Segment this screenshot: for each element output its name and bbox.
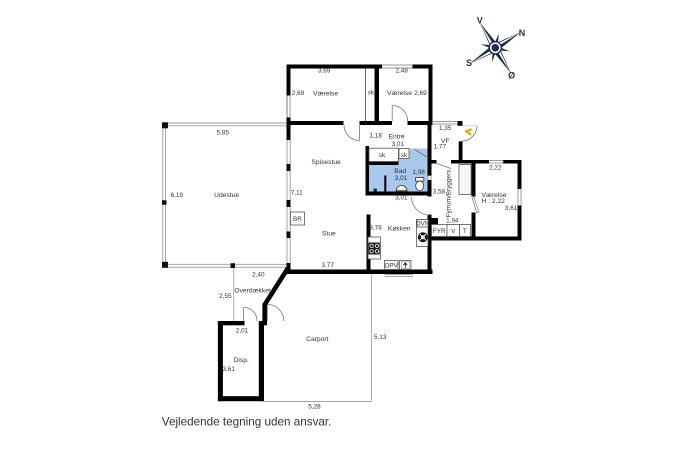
- svg-text:Spisestue: Spisestue: [311, 159, 341, 166]
- svg-text:3,77: 3,77: [321, 262, 334, 269]
- svg-text:3,78: 3,78: [369, 225, 382, 232]
- svg-text:2,55: 2,55: [219, 293, 232, 300]
- svg-text:1,77: 1,77: [434, 143, 447, 150]
- svg-text:sk: sk: [368, 89, 375, 96]
- svg-text:Entré: Entré: [389, 134, 405, 141]
- svg-text:T: T: [463, 228, 467, 235]
- svg-text:V: V: [477, 16, 483, 26]
- svg-text:3,58: 3,58: [433, 189, 446, 196]
- svg-text:N: N: [519, 28, 526, 38]
- svg-text:3,01: 3,01: [395, 175, 408, 182]
- svg-text:7,11: 7,11: [291, 189, 303, 196]
- svg-text:Disp.: Disp.: [234, 357, 249, 364]
- svg-text:3,69: 3,69: [318, 68, 331, 75]
- svg-text:5,85: 5,85: [216, 130, 229, 137]
- svg-text:Ø: Ø: [508, 71, 515, 81]
- svg-text:3,61: 3,61: [222, 366, 235, 373]
- svg-text:Vejledende tegning uden ansvar: Vejledende tegning uden ansvar.: [162, 416, 332, 429]
- svg-text:BR: BR: [293, 216, 302, 223]
- svg-text:Bad: Bad: [394, 168, 406, 175]
- svg-text:Udestue: Udestue: [214, 192, 239, 199]
- svg-text:2,40: 2,40: [252, 271, 265, 278]
- svg-text:2,48: 2,48: [395, 67, 408, 74]
- svg-text:2,22: 2,22: [489, 165, 502, 172]
- svg-text:3,01: 3,01: [392, 141, 405, 148]
- svg-text:Fyrrum/Bryggers: Fyrrum/Bryggers: [446, 170, 453, 218]
- svg-text:Stue: Stue: [322, 230, 336, 237]
- svg-text:H : 2,22: H : 2,22: [481, 198, 505, 205]
- svg-text:OVN: OVN: [416, 220, 430, 227]
- svg-text:S: S: [466, 58, 472, 68]
- svg-text:5,13: 5,13: [374, 334, 387, 341]
- svg-text:1,18: 1,18: [369, 133, 382, 140]
- svg-text:FYR: FYR: [433, 228, 446, 235]
- svg-text:3,61: 3,61: [505, 205, 518, 212]
- svg-text:sk: sk: [379, 152, 386, 159]
- svg-text:V: V: [451, 228, 456, 235]
- svg-text:Værelse: Værelse: [313, 90, 338, 97]
- svg-text:sk: sk: [401, 152, 408, 159]
- svg-text:2,69: 2,69: [292, 90, 305, 97]
- svg-text:1,35: 1,35: [439, 125, 452, 132]
- svg-text:3,01: 3,01: [395, 195, 408, 202]
- svg-text:1,98: 1,98: [412, 169, 425, 176]
- svg-text:Værelse: Værelse: [387, 90, 412, 97]
- svg-text:Carport: Carport: [306, 336, 328, 343]
- svg-text:6,18: 6,18: [171, 192, 184, 199]
- svg-text:Køkken: Køkken: [388, 225, 411, 232]
- svg-text:OPV: OPV: [384, 263, 398, 270]
- svg-text:5,28: 5,28: [308, 404, 321, 411]
- svg-text:1,94: 1,94: [446, 218, 459, 225]
- svg-text:2,69: 2,69: [414, 90, 427, 97]
- svg-text:Overdækket: Overdækket: [234, 287, 271, 294]
- svg-text:2,01: 2,01: [236, 328, 249, 335]
